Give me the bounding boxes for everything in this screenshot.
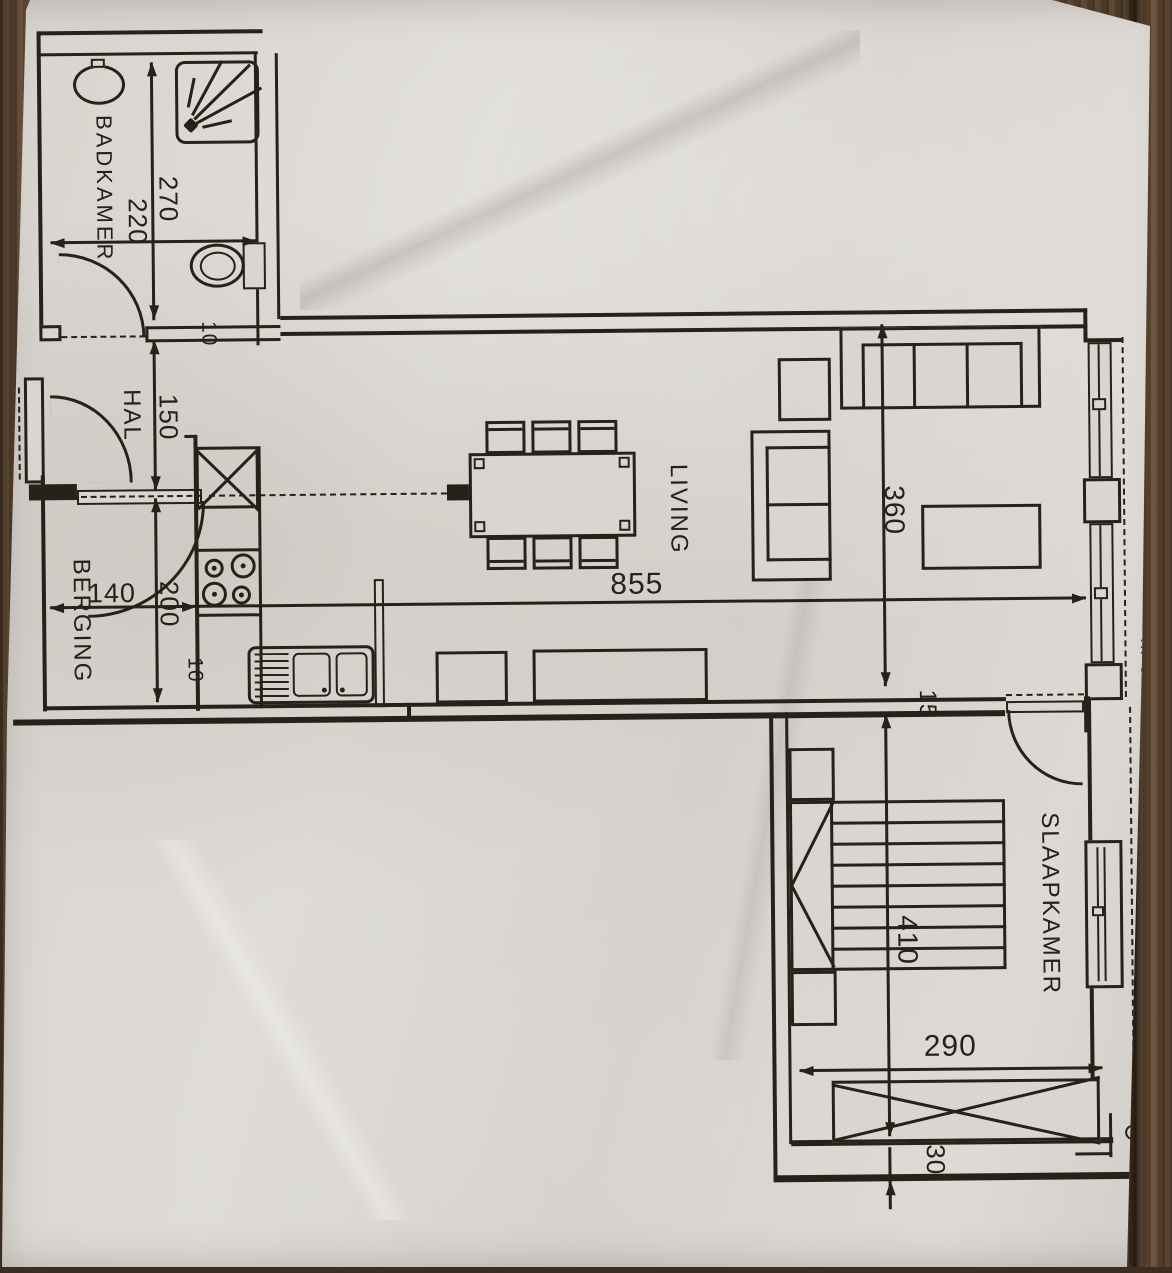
toilet-tank (243, 242, 266, 289)
corner-bracket (1075, 1152, 1112, 1155)
wall-segment (407, 703, 411, 718)
coffee-table (921, 504, 1042, 570)
window-mullion (1092, 906, 1104, 916)
bedroom-door-arc (1007, 709, 1083, 786)
dim-label: 360 (878, 485, 910, 535)
dim-label: 220 (122, 198, 153, 245)
dim-arrow (147, 62, 157, 76)
dim-arrow (1088, 1063, 1102, 1073)
nightstand (791, 971, 838, 1026)
burner-dot (241, 563, 246, 568)
balcony-edge (1121, 337, 1126, 697)
nightstand (788, 748, 835, 801)
table-corner (619, 457, 630, 468)
wall-segment (41, 475, 47, 711)
chair-back-line (582, 559, 616, 562)
dining-table (469, 452, 637, 539)
sink-drain (322, 688, 327, 693)
corner-bracket (1109, 1113, 1112, 1157)
wall-segment (40, 29, 263, 35)
dim-arrow (799, 1066, 813, 1076)
sideboard (532, 648, 708, 703)
chair-back-line (488, 428, 522, 431)
chair (577, 420, 617, 453)
chair (532, 536, 572, 569)
sofa-line (766, 446, 831, 450)
dim-label: 270 (152, 176, 183, 223)
chair-back-line (580, 427, 614, 430)
room-label-berging: BERGING (67, 559, 96, 684)
burner-dot (212, 592, 217, 597)
dim-label: 200 (153, 581, 184, 628)
washbasin (73, 65, 125, 105)
wall-pier (1083, 478, 1121, 523)
sofa-line (767, 558, 832, 562)
dim-label: 410 (891, 915, 923, 965)
sofa-cushion-divider (766, 503, 831, 507)
stove-edge (196, 548, 261, 552)
dim-line (800, 1066, 1103, 1072)
wall-segment (1087, 700, 1092, 842)
wall-stub (29, 484, 77, 500)
chair (531, 420, 571, 453)
wall-segment (275, 53, 281, 319)
dim-label: 10 (196, 321, 220, 347)
dim-arrow (151, 476, 161, 490)
table-corner (619, 520, 630, 531)
sideboard (435, 651, 507, 704)
dim-arrow (881, 672, 891, 686)
dim-label: 15 (913, 689, 941, 718)
front-door-leaf (24, 377, 45, 483)
paper-sheet: BADKAMER 270 220 10 HAL 150 BERGING 140 … (0, 0, 1172, 1267)
wall-segment (43, 697, 1006, 710)
wall-tick (184, 435, 196, 438)
chair (486, 537, 526, 570)
bedroom-door-lintel (1006, 693, 1084, 696)
burner-dot (239, 592, 244, 597)
wall-segment (13, 710, 1005, 726)
kitchen-partition (374, 579, 385, 707)
room-label-hal: HAL (117, 389, 146, 442)
sink-drainboard (254, 653, 288, 698)
stove-edge (197, 613, 262, 617)
wall-segment (145, 326, 148, 342)
wall-segment (769, 712, 777, 1180)
dim-arrow (877, 324, 887, 338)
wall-segment (1083, 308, 1087, 342)
photo-scene: BADKAMER 270 220 10 HAL 150 BERGING 140 … (0, 0, 1172, 1267)
room-label-slaapkamer: SLAAPKAMER (1035, 812, 1065, 995)
sofa-three-seat (839, 326, 1041, 410)
room-label-living: LIVING (664, 464, 693, 555)
wall-segment (37, 31, 44, 329)
sofa-cushion-divider (966, 342, 970, 408)
dim-arrow (151, 498, 161, 512)
dim-arrow (881, 714, 891, 728)
dim-label: 30 (920, 1144, 951, 1175)
dim-label: 10 (183, 657, 207, 683)
wall-pier (1085, 663, 1123, 700)
dim-arrow (149, 305, 159, 319)
dim-label: 855 (610, 567, 663, 602)
window-mullion (1094, 587, 1108, 599)
dim-arrow (149, 340, 159, 354)
dim-label: 140 (88, 578, 136, 609)
chair (485, 421, 525, 454)
wall-segment (280, 308, 1087, 320)
sink-drain (340, 687, 345, 692)
dim-arrow (51, 238, 65, 248)
floor-plan: BADKAMER 270 220 10 HAL 150 BERGING 140 … (0, 0, 1172, 1273)
dim-arrow (885, 1122, 895, 1136)
dim-arrow (50, 603, 64, 613)
dim-arrow (1072, 593, 1086, 603)
bathroom-door-arc (59, 252, 146, 338)
chair-back-line (490, 560, 524, 563)
chair-back-line (534, 427, 568, 430)
chair-back-line (536, 559, 570, 562)
table-corner (474, 521, 485, 532)
dim-line (888, 1147, 892, 1209)
side-table (778, 358, 832, 422)
burner-dot (212, 566, 217, 571)
sofa-line (1020, 342, 1024, 408)
wall-segment (774, 1172, 1142, 1183)
sheet-note: nr 0.5 (1135, 638, 1159, 695)
room-label-badkamer: BADKAMER (90, 115, 117, 263)
window-mullion (1092, 398, 1106, 410)
balcony-edge (1129, 707, 1135, 1127)
bathroom-door-threshold (61, 335, 145, 338)
wall-segment (40, 51, 258, 56)
drain-circle (1125, 1125, 1140, 1140)
sofa-cushion-divider (913, 343, 917, 409)
entry-threshold (18, 388, 21, 480)
dim-label: 290 (924, 1029, 977, 1064)
dim-label: 150 (153, 394, 184, 441)
chair (578, 536, 618, 569)
dim-arrow (886, 1181, 896, 1195)
table-corner (474, 458, 485, 469)
dim-arrow (153, 688, 163, 702)
wall-stub (39, 325, 61, 341)
washbasin-tap (91, 59, 105, 68)
dim-arrow (242, 236, 256, 246)
sofa-line (862, 343, 866, 409)
